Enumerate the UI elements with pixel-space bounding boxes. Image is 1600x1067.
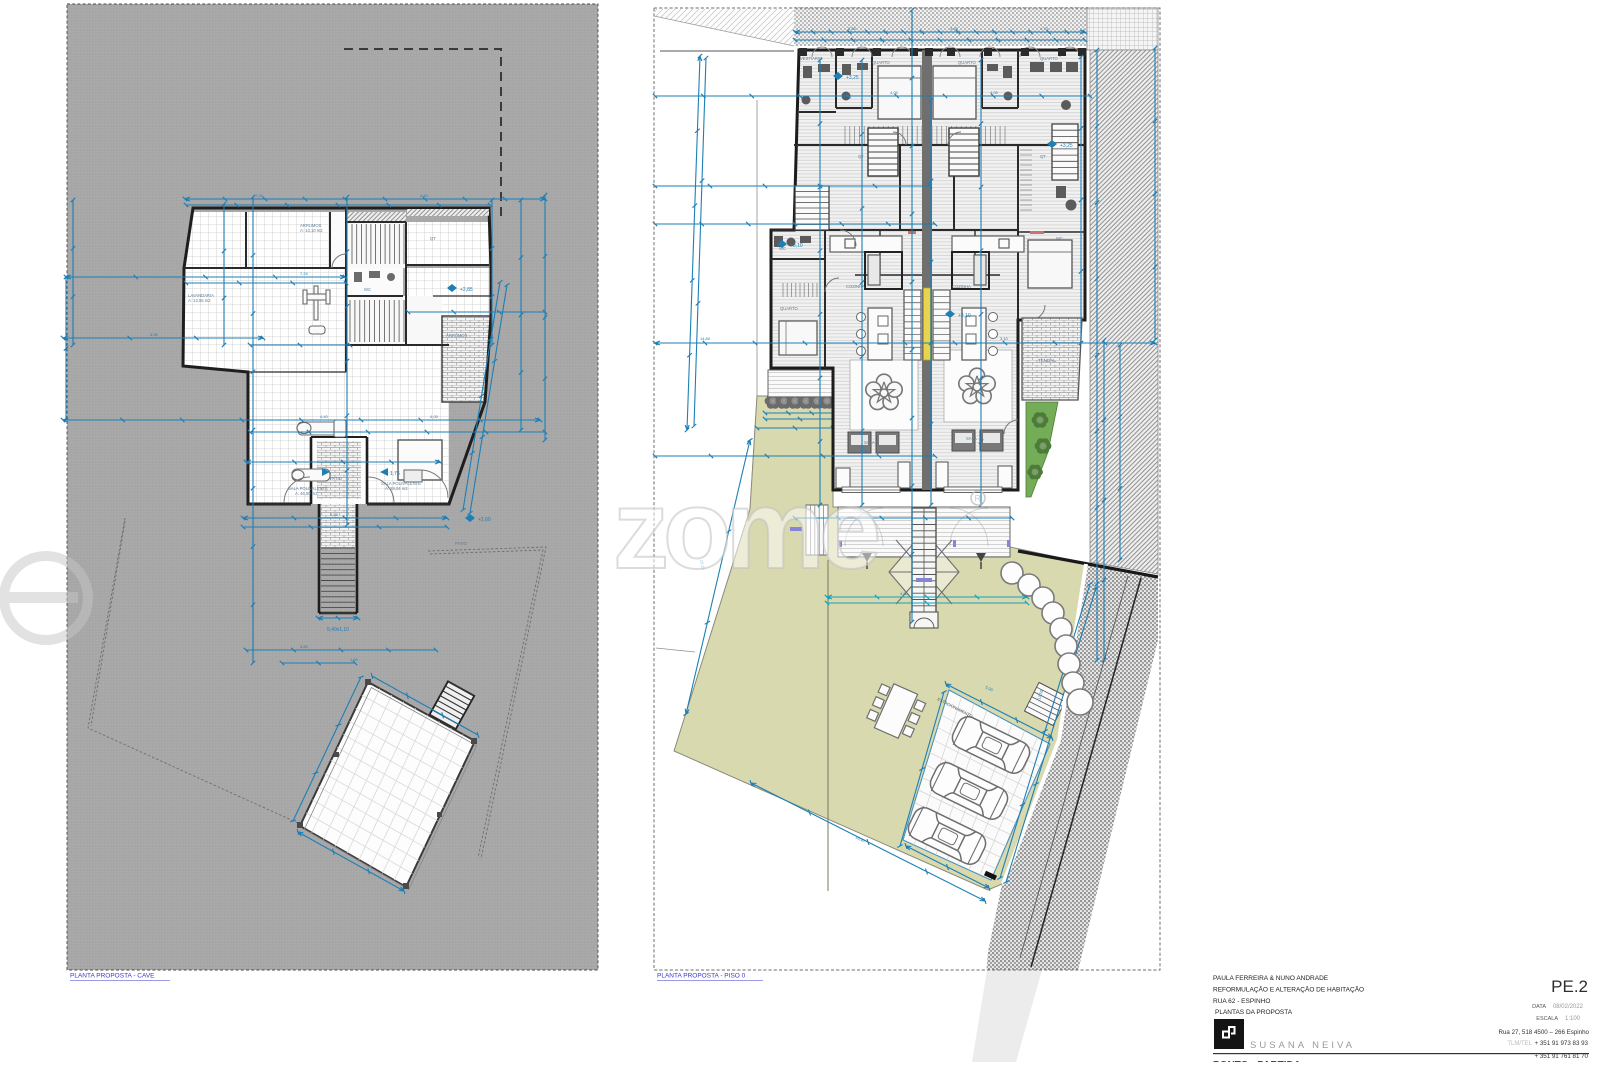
svg-text:WC: WC (364, 287, 371, 292)
svg-text:4,05: 4,05 (890, 90, 899, 95)
svg-text:QUARTO: QUARTO (780, 306, 799, 311)
svg-text:Rua 27, 518 4500 – 266 Espinho: Rua 27, 518 4500 – 266 Espinho (1499, 1029, 1590, 1036)
svg-text:QUARTO: QUARTO (872, 60, 891, 65)
svg-text:QT: QT (1040, 154, 1046, 159)
svg-text:PATIO: PATIO (455, 541, 468, 546)
svg-text:A: 46,50 m2: A: 46,50 m2 (295, 491, 318, 496)
svg-text:QT: QT (858, 154, 864, 159)
svg-text:ESCALA: ESCALA (1536, 1016, 1558, 1022)
svg-text:RUA 62 - ESPINHO: RUA 62 - ESPINHO (1213, 998, 1270, 1005)
svg-text:QT: QT (430, 236, 436, 241)
svg-text:VESTIARIO: VESTIARIO (800, 56, 823, 61)
svg-text:A: 28,04 m2: A: 28,04 m2 (385, 486, 408, 491)
svg-text:+3,25: +3,25 (846, 75, 859, 81)
svg-text:5,40x1,10: 5,40x1,10 (327, 627, 349, 633)
svg-text:7,24: 7,24 (255, 193, 264, 198)
svg-text:R: R (975, 494, 982, 504)
svg-text:WC: WC (1056, 236, 1063, 241)
svg-text:PLANTA PROPOSTA - CAVE: PLANTA PROPOSTA - CAVE (70, 973, 155, 980)
svg-text:+3,25: +3,25 (1060, 143, 1073, 149)
svg-text:REFORMULAÇÃO E ALTERAÇÃO DE HA: REFORMULAÇÃO E ALTERAÇÃO DE HABITAÇÃO (1213, 985, 1364, 994)
svg-text:4,05: 4,05 (990, 90, 999, 95)
svg-text:08/02/2022: 08/02/2022 (1553, 1004, 1584, 1010)
svg-text:4,80: 4,80 (900, 591, 909, 596)
svg-text:14,80: 14,80 (700, 336, 711, 341)
svg-text:+3,10: +3,10 (958, 313, 971, 319)
svg-text:1,70: 1,70 (1040, 26, 1049, 31)
svg-text:PLANTAS DA PROPOSTA: PLANTAS DA PROPOSTA (1215, 1009, 1293, 1016)
svg-text:QUARTO: QUARTO (958, 60, 977, 65)
svg-text:7,24: 7,24 (300, 271, 309, 276)
svg-text:4,40: 4,40 (420, 193, 429, 198)
svg-text:+2,85: +2,85 (460, 287, 473, 293)
svg-text:1,75: 1,75 (390, 471, 400, 477)
svg-text:3,40: 3,40 (950, 26, 959, 31)
svg-text:4,95: 4,95 (150, 332, 159, 337)
svg-text:3,80: 3,80 (300, 644, 309, 649)
svg-text:WC: WC (779, 246, 786, 251)
svg-text:+ 351 91 761 81 70: + 351 91 761 81 70 (1534, 1053, 1588, 1060)
svg-text:4,05: 4,05 (430, 414, 439, 419)
svg-text:SALA: SALA (966, 436, 977, 441)
svg-text:+2,60: +2,60 (478, 517, 491, 523)
svg-text:SALA: SALA (864, 440, 875, 445)
svg-text:+ 351 91 973 83 93: + 351 91 973 83 93 (1534, 1040, 1588, 1047)
svg-text:3,10: 3,10 (1000, 336, 1009, 341)
svg-text:PATIO: PATIO (330, 476, 343, 481)
svg-text:+3,10: +3,10 (790, 243, 803, 249)
svg-text:DATA: DATA (1532, 1004, 1546, 1010)
svg-text:2,85: 2,85 (848, 26, 857, 31)
svg-text:1:100: 1:100 (1565, 1016, 1581, 1022)
svg-text:TLM/TEL: TLM/TEL (1507, 1041, 1532, 1047)
svg-text:ARRUMOS: ARRUMOS (446, 333, 468, 338)
svg-text:PLANTA PROPOSTA - PISO 0: PLANTA PROPOSTA - PISO 0 (657, 973, 746, 980)
svg-text:5,35: 5,35 (860, 449, 869, 454)
svg-text:QUARTO: QUARTO (1040, 56, 1059, 61)
svg-text:A: 13,10 m2: A: 13,10 m2 (300, 228, 323, 233)
svg-text:TENDAL: TENDAL (1038, 358, 1056, 363)
svg-text:PAULA FERREIRA & NUNO ANDRADE: PAULA FERREIRA & NUNO ANDRADE (1213, 975, 1329, 982)
svg-text:1,60: 1,60 (350, 657, 359, 662)
svg-text:4,40: 4,40 (320, 414, 329, 419)
svg-text:COZINHA: COZINHA (952, 284, 971, 289)
svg-text:COZINHA: COZINHA (846, 284, 865, 289)
svg-text:zome: zome (613, 467, 878, 592)
svg-text:PE.2: PE.2 (1551, 977, 1588, 996)
svg-text:2,95: 2,95 (330, 512, 339, 517)
svg-text:A: 13,55 m2: A: 13,55 m2 (188, 298, 211, 303)
svg-text:SUSANA NEIVA: SUSANA NEIVA (1250, 1040, 1355, 1051)
